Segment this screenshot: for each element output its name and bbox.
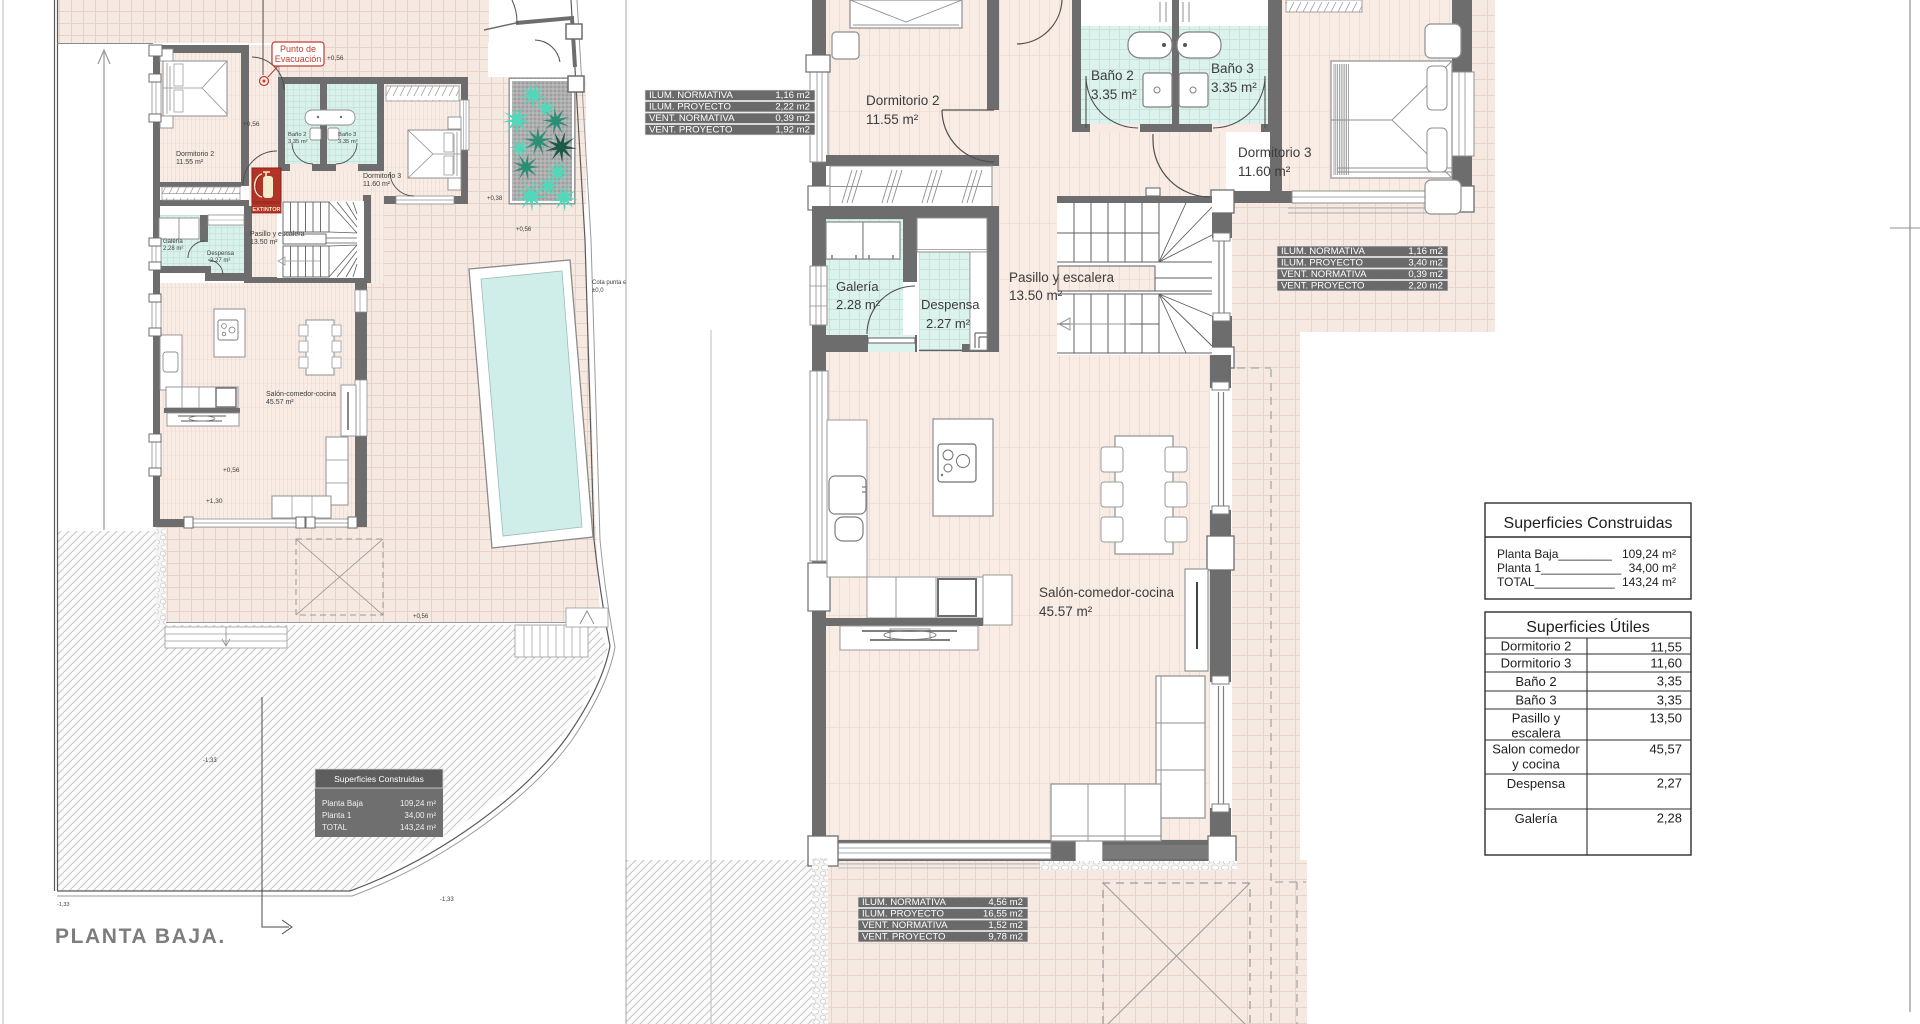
- svg-text:3,35: 3,35: [1657, 693, 1682, 708]
- svg-text:34,00 m²: 34,00 m²: [1629, 561, 1676, 575]
- svg-text:3.35 m²: 3.35 m²: [338, 139, 358, 145]
- svg-text:+0,56: +0,56: [223, 467, 240, 474]
- svg-text:Dormitorio 3: Dormitorio 3: [1501, 656, 1572, 671]
- svg-text:143,24 m²: 143,24 m²: [1622, 575, 1676, 589]
- svg-text:Planta 1: Planta 1: [322, 811, 352, 820]
- svg-text:Pasillo y escalera: Pasillo y escalera: [1009, 270, 1115, 285]
- svg-text:VENT. PROYECTO: VENT. PROYECTO: [649, 125, 733, 136]
- svg-text:143,24 m²: 143,24 m²: [400, 823, 436, 832]
- svg-text:ILUM. NORMATIVA: ILUM. NORMATIVA: [1281, 246, 1365, 257]
- svg-text:EXTINTOR: EXTINTOR: [252, 207, 280, 213]
- svg-text:Cota punta e: Cota punta e: [592, 280, 627, 286]
- svg-text:+0,38: +0,38: [487, 196, 503, 202]
- svg-text:VENT. NORMATIVA: VENT. NORMATIVA: [1281, 269, 1367, 280]
- svg-text:3.35 m²: 3.35 m²: [1091, 87, 1137, 102]
- svg-text:Despensa: Despensa: [207, 251, 235, 257]
- svg-text:Baño 2: Baño 2: [288, 132, 306, 138]
- svg-text:2.27 m²: 2.27 m²: [926, 316, 971, 331]
- svg-text:2.28 m²: 2.28 m²: [163, 246, 183, 252]
- svg-text:45,57: 45,57: [1649, 742, 1682, 757]
- svg-text:Planta Baja: Planta Baja: [322, 799, 363, 808]
- svg-text:13,50: 13,50: [1649, 711, 1682, 726]
- svg-text:13.50 m²: 13.50 m²: [1009, 288, 1063, 303]
- svg-text:Planta 1____________: Planta 1____________: [1497, 561, 1621, 575]
- svg-text:3.35 m²: 3.35 m²: [288, 139, 308, 145]
- svg-text:Salón-comedor-cocina: Salón-comedor-cocina: [1039, 585, 1175, 600]
- svg-text:VENT. PROYECTO: VENT. PROYECTO: [1281, 281, 1365, 292]
- svg-text:Baño 3: Baño 3: [1515, 693, 1556, 708]
- svg-text:TOTAL____________: TOTAL____________: [1497, 575, 1615, 589]
- svg-text:-1,33: -1,33: [57, 902, 70, 908]
- svg-text:ILUM. NORMATIVA: ILUM. NORMATIVA: [649, 90, 733, 101]
- svg-text:Baño 2: Baño 2: [1515, 674, 1556, 689]
- svg-text:16,55 m2: 16,55 m2: [983, 909, 1023, 920]
- svg-text:3,40 m2: 3,40 m2: [1408, 258, 1443, 269]
- svg-text:TOTAL: TOTAL: [322, 823, 348, 832]
- svg-text:11.55 m²: 11.55 m²: [176, 159, 204, 166]
- svg-text:Despensa: Despensa: [921, 297, 980, 312]
- svg-text:Planta Baja________: Planta Baja________: [1497, 547, 1612, 561]
- svg-text:PLANTA BAJA.: PLANTA BAJA.: [55, 925, 226, 948]
- svg-text:Superficies Construidas: Superficies Construidas: [334, 774, 424, 784]
- svg-text:0,39 m2: 0,39 m2: [775, 113, 810, 124]
- svg-text:2,22 m2: 2,22 m2: [775, 102, 810, 113]
- svg-text:VENT. NORMATIVA: VENT. NORMATIVA: [862, 920, 948, 931]
- svg-text:0,39 m2: 0,39 m2: [1408, 269, 1443, 280]
- svg-text:Dormitorio 3: Dormitorio 3: [363, 173, 401, 180]
- svg-text:Superficies Útiles: Superficies Útiles: [1526, 617, 1650, 636]
- svg-text:11.55 m²: 11.55 m²: [866, 112, 919, 127]
- svg-text:2,20 m2: 2,20 m2: [1408, 281, 1443, 292]
- svg-text:Pasillo y escalera: Pasillo y escalera: [250, 231, 305, 238]
- svg-text:4,56 m2: 4,56 m2: [988, 897, 1023, 908]
- svg-text:45.57 m²: 45.57 m²: [1039, 604, 1093, 619]
- svg-text:ILUM. PROYECTO: ILUM. PROYECTO: [1281, 258, 1363, 269]
- svg-text:ILUM. NORMATIVA: ILUM. NORMATIVA: [862, 897, 946, 908]
- svg-text:2.27 m²: 2.27 m²: [210, 258, 230, 264]
- svg-text:+0,56: +0,56: [413, 614, 429, 620]
- svg-text:VENT. PROYECTO: VENT. PROYECTO: [862, 932, 946, 943]
- svg-text:9,78 m2: 9,78 m2: [988, 932, 1023, 943]
- svg-text:Dormitorio 3: Dormitorio 3: [1238, 145, 1312, 160]
- svg-text:1,92 m2: 1,92 m2: [775, 125, 810, 136]
- svg-text:13.50 m²: 13.50 m²: [250, 239, 278, 246]
- svg-text:3.35 m²: 3.35 m²: [1211, 80, 1257, 95]
- svg-text:VENT. NORMATIVA: VENT. NORMATIVA: [649, 113, 735, 124]
- svg-text:+0,56: +0,56: [327, 55, 344, 62]
- svg-text:escalera: escalera: [1511, 726, 1561, 741]
- svg-text:Baño 3: Baño 3: [1211, 61, 1254, 76]
- svg-text:2.28 m²: 2.28 m²: [836, 297, 881, 312]
- svg-text:Salón-comedor-cocina: Salón-comedor-cocina: [266, 391, 336, 398]
- svg-text:2,28: 2,28: [1657, 811, 1682, 826]
- svg-text:2,27: 2,27: [1657, 776, 1682, 791]
- svg-text:Baño 2: Baño 2: [1091, 68, 1134, 83]
- svg-text:Dormitorio 2: Dormitorio 2: [1501, 639, 1572, 654]
- svg-text:-1,33: -1,33: [203, 758, 217, 764]
- svg-text:±0,0: ±0,0: [592, 288, 604, 294]
- svg-text:109,24 m²: 109,24 m²: [400, 799, 436, 808]
- svg-text:11,55: 11,55: [1650, 640, 1682, 655]
- svg-text:1,16 m2: 1,16 m2: [1408, 246, 1443, 257]
- svg-text:Pasillo y: Pasillo y: [1512, 711, 1561, 726]
- svg-text:3,35: 3,35: [1657, 674, 1682, 689]
- svg-text:+1,30: +1,30: [206, 498, 223, 505]
- svg-text:Dormitorio 2: Dormitorio 2: [866, 93, 940, 108]
- svg-text:11,60: 11,60: [1650, 656, 1682, 671]
- svg-text:ILUM. PROYECTO: ILUM. PROYECTO: [649, 102, 731, 113]
- svg-text:109,24 m²: 109,24 m²: [1622, 547, 1676, 561]
- svg-text:11.60 m²: 11.60 m²: [363, 181, 391, 188]
- svg-text:Galería: Galería: [836, 279, 879, 294]
- svg-text:ILUM. PROYECTO: ILUM. PROYECTO: [862, 909, 944, 920]
- svg-text:1,16 m2: 1,16 m2: [775, 90, 810, 101]
- svg-text:1,52 m2: 1,52 m2: [988, 920, 1023, 931]
- svg-text:Galería: Galería: [163, 239, 183, 245]
- svg-text:Salon comedor: Salon comedor: [1492, 742, 1580, 757]
- svg-text:y cocina: y cocina: [1512, 757, 1560, 772]
- svg-text:11.60 m²: 11.60 m²: [1238, 164, 1291, 179]
- svg-text:Evacuación: Evacuación: [275, 54, 322, 64]
- svg-text:Dormitorio 2: Dormitorio 2: [176, 151, 214, 158]
- svg-text:-1,33: -1,33: [440, 897, 454, 903]
- svg-text:45.57 m²: 45.57 m²: [266, 399, 294, 406]
- svg-text:Baño 3: Baño 3: [338, 132, 356, 138]
- svg-text:34,00 m²: 34,00 m²: [404, 811, 436, 820]
- svg-text:+0,56: +0,56: [243, 121, 260, 128]
- svg-text:Punto de: Punto de: [280, 44, 316, 54]
- svg-text:Superficies Construidas: Superficies Construidas: [1504, 515, 1673, 532]
- svg-text:+0,56: +0,56: [516, 227, 532, 233]
- svg-text:Despensa: Despensa: [1507, 776, 1566, 791]
- svg-text:Galería: Galería: [1515, 811, 1558, 826]
